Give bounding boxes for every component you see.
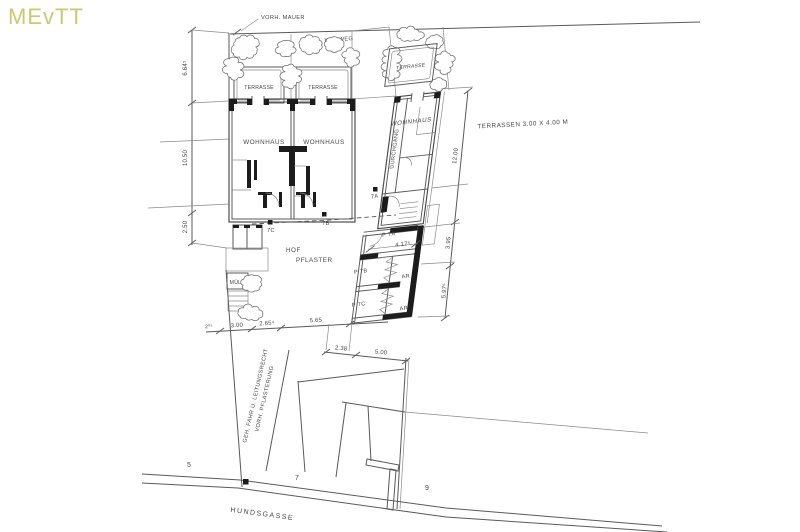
site-plan-drawing: MEvTT VORH. MAUER KIESWEG TERRASSE TERRA…: [0, 0, 800, 532]
street: HUNDSGASSE: [142, 474, 667, 532]
parking-7b-label: P 7B: [354, 268, 368, 276]
dimension-chain-hof: 2⁰⁵ 3.00 2.65⁴ 5.65: [205, 318, 388, 334]
entrance-dot-7b: [322, 212, 327, 217]
dim-hof-3: 2.65⁴: [259, 320, 275, 328]
dim-hof-4: 5.65: [310, 318, 323, 325]
houses-1-2: WOHNHAUS WOHNHAUS: [229, 96, 355, 222]
wohnhaus-2-label: WOHNHAUS: [303, 139, 344, 146]
bush-icon: [342, 48, 360, 68]
dim-right-2: 3.95: [445, 236, 452, 249]
bush-icon: [434, 51, 455, 75]
top-boundary-wall: VORH. MAUER: [228, 15, 700, 35]
terrace-2-label: TERRASSE: [308, 85, 338, 91]
survey-point: [243, 479, 249, 485]
bush-icon: [275, 40, 296, 56]
storage-ar-label: AR: [399, 306, 408, 313]
garden-bushes: [222, 26, 455, 91]
annex-width-dim: 4.17⁵: [395, 240, 411, 249]
entrance-7b-label: 7B: [322, 221, 330, 227]
parking-7c-label: P 7C: [352, 301, 367, 309]
pflaster-label: PFLASTER: [296, 257, 333, 264]
entrance-dot-7c: [268, 220, 273, 225]
dim-left-1: 6.64⁵: [182, 60, 189, 75]
courtyard: MÜLL HOF PFLASTER: [226, 225, 333, 321]
terrace-1-label: TERRASSE: [244, 85, 274, 91]
site-plan-scan: MEvTT VORH. MAUER KIESWEG TERRASSE TERRA…: [0, 0, 800, 532]
bush-icon: [241, 275, 262, 292]
street-name: HUNDSGASSE: [230, 507, 294, 522]
dim-lower-1: 2.38: [335, 345, 348, 352]
watermark-logo: MEvTT: [8, 4, 84, 29]
bush-icon: [231, 35, 259, 60]
storage-ar-label: AR: [401, 274, 410, 281]
plot-5-label: 5: [187, 462, 191, 469]
dim-left-2: 10.50: [183, 150, 189, 166]
plot-7-label: 7: [295, 475, 299, 482]
terrace-3-label: TERRASSE: [396, 62, 426, 71]
dim-left-3: 2.50: [183, 220, 189, 233]
entrance-7c-label: 7C: [267, 228, 275, 234]
dim-lower-2: 5.00: [375, 349, 388, 356]
dim-hof-2: 3.00: [231, 323, 244, 330]
bush-icon: [397, 26, 424, 41]
wohnhaus-3-label: WOHNHAUS: [390, 116, 432, 127]
entrance-markers: 7C 7B 7A: [252, 187, 396, 234]
terrassen-note: TERRASSEN 3.00 X 4.00 M: [477, 119, 568, 131]
parking-7a-label: P 7A: [382, 231, 396, 239]
entrance-dot-7a: [373, 187, 378, 192]
wohnhaus-1-label: WOHNHAUS: [243, 139, 284, 146]
dimension-chain-left: 6.64⁵ 10.50 2.50: [148, 27, 230, 248]
dim-right-1: 12.00: [452, 147, 460, 164]
dimension-chain-lower: 2.38 5.00: [322, 323, 410, 364]
existing-wall: [387, 469, 396, 510]
vorh-mauer-label: VORH. MAUER: [261, 15, 305, 21]
bush-icon: [425, 35, 443, 49]
bush-icon: [299, 35, 322, 55]
bush-icon: [222, 57, 244, 80]
annex-room-labels: P 7A 4.17⁵ P 7B AR P 7C AR: [352, 231, 411, 312]
entrance-7a-label: 7A: [371, 194, 379, 201]
hof-label: HOF: [286, 247, 301, 254]
plot-9-label: 9: [425, 485, 429, 492]
dim-hof-1: 2⁰⁵: [205, 324, 213, 330]
bush-icon: [324, 37, 344, 53]
chimney: [279, 146, 307, 152]
west-plot-boundary: [226, 270, 242, 487]
bush-icon: [238, 304, 263, 321]
